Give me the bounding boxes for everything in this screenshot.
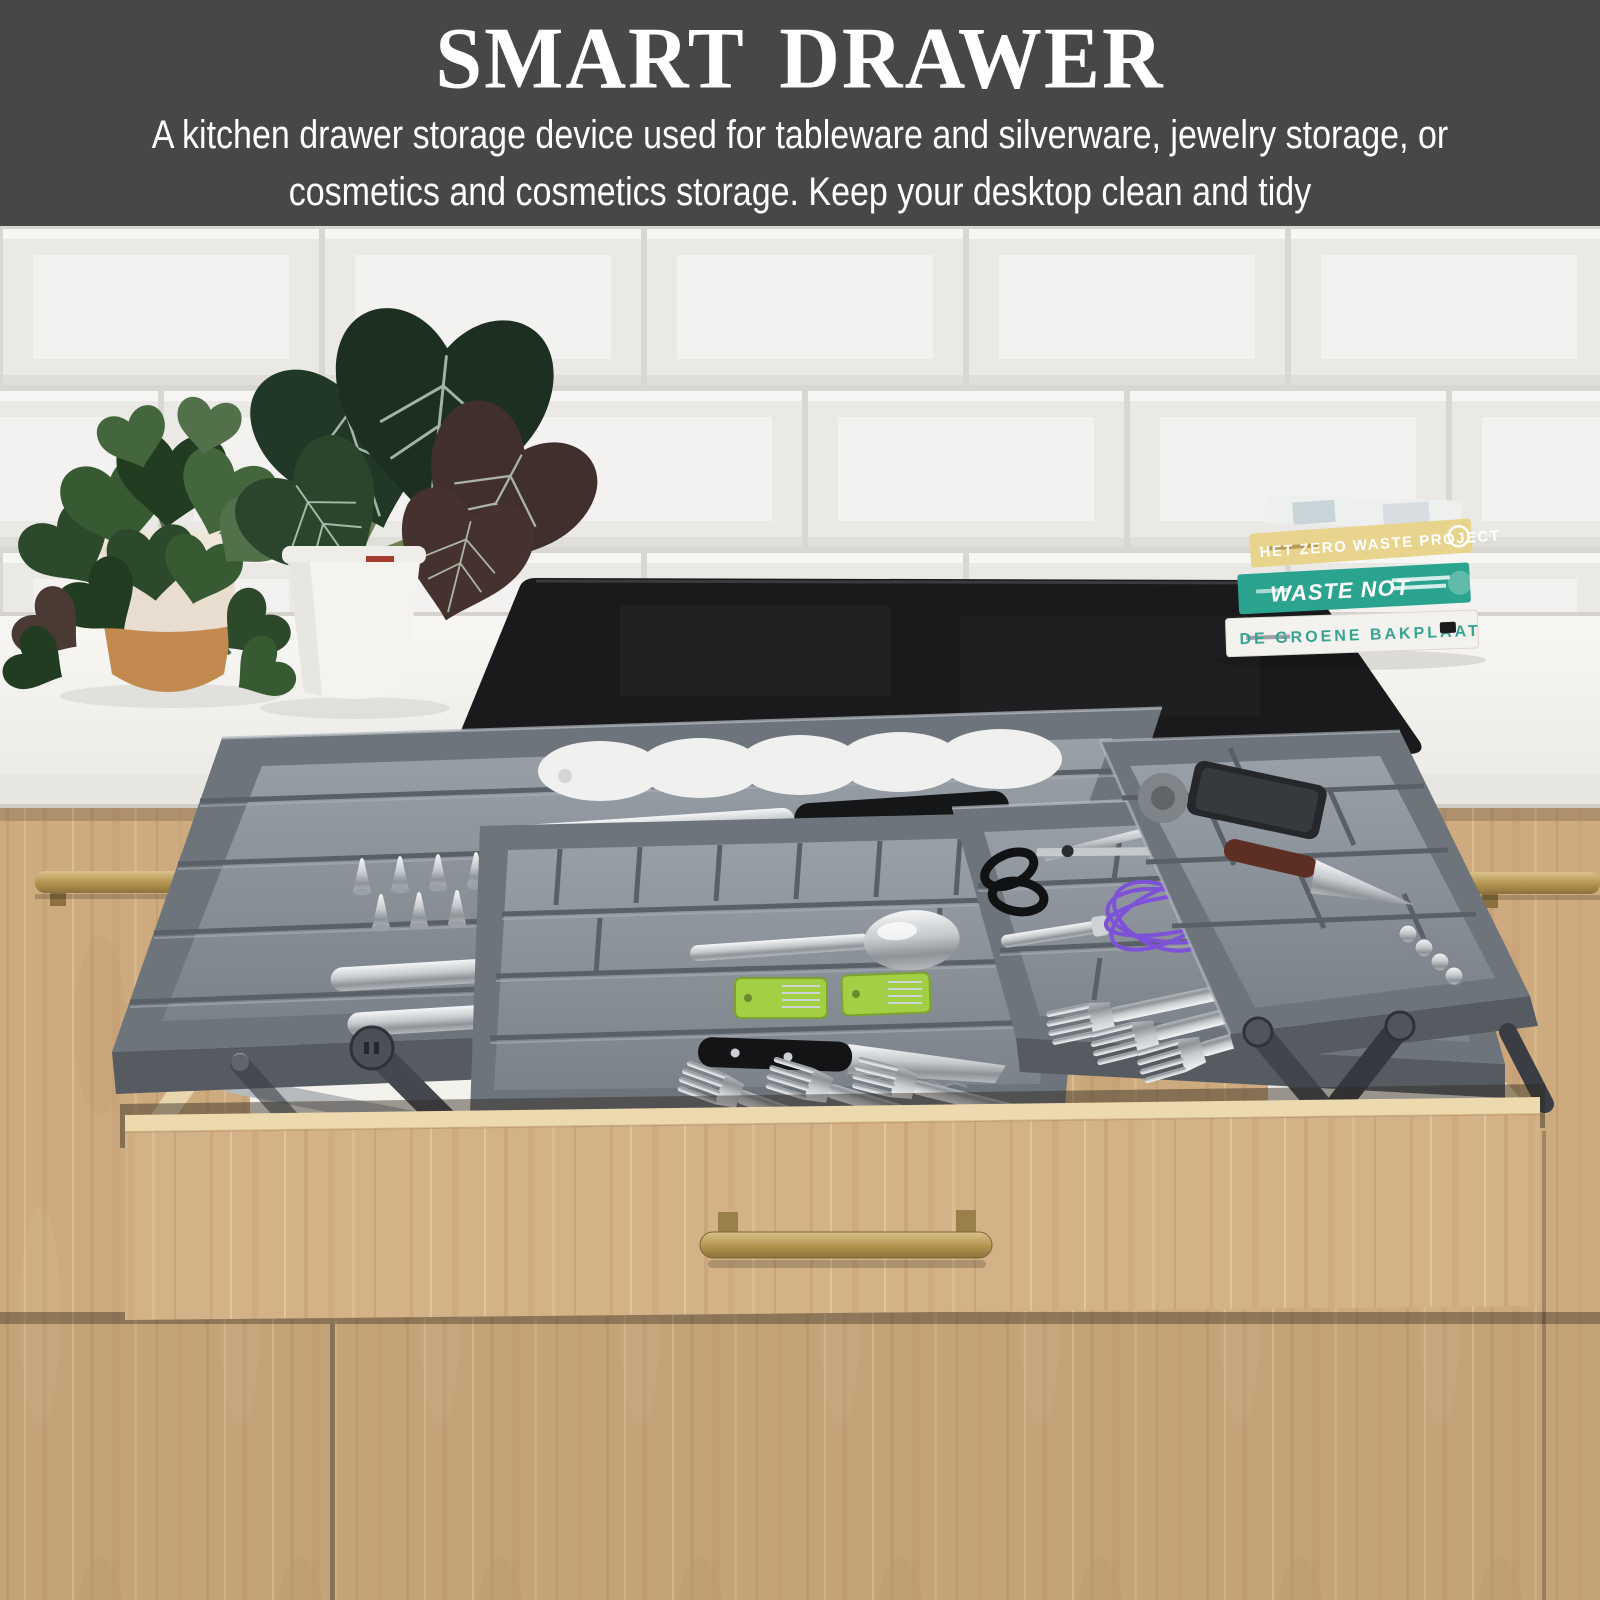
kitchen-scene: HET ZERO WASTE PROJECT WASTE NOT DE GROE… — [0, 226, 1600, 1600]
page-title: SMART DRAWER — [0, 0, 1600, 107]
right-cabinet-seam — [1542, 1131, 1546, 1600]
book-2-logo — [1448, 571, 1471, 594]
header-banner: SMART DRAWER A kitchen drawer storage de… — [0, 0, 1600, 226]
drawer-front — [125, 1097, 1540, 1320]
product-image: SMART DRAWER A kitchen drawer storage de… — [0, 0, 1600, 1600]
kitchen-photo: HET ZERO WASTE PROJECT WASTE NOT DE GROE… — [0, 226, 1600, 1600]
book-3-logo — [1440, 622, 1456, 634]
lower-cabinet-seam — [330, 1324, 335, 1600]
subtitle: A kitchen drawer storage device used for… — [95, 107, 1506, 221]
